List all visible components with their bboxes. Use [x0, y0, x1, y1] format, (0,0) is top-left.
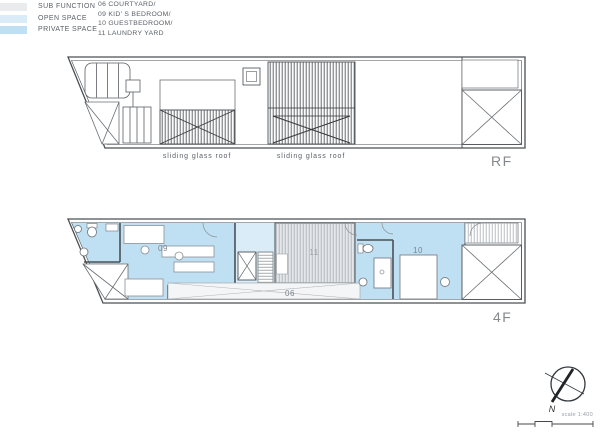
room-label-11: 11: [309, 248, 318, 257]
legend-room-11: 11 LAUNDRY YARD: [98, 30, 164, 37]
rf-sliding-roof-right: [268, 62, 355, 144]
legend-label-private-space: PRIVATE SPACE: [38, 26, 97, 33]
room-label-06: 06: [285, 289, 295, 298]
north-label: N: [549, 404, 556, 414]
rf-sliding-roof-left: [160, 80, 235, 144]
legend-swatch-sub-function: [0, 3, 27, 11]
4f-floor-plan: 09 11 10 06: [62, 212, 532, 322]
north-arrow-icon: [545, 367, 585, 402]
rf-plan-title: RF: [491, 153, 513, 169]
scale-label: scale 1:400: [562, 412, 593, 418]
legend-room-06: 06 COURTYARD/: [98, 1, 156, 8]
sliding-glass-roof-label-right: sliding glass roof: [277, 153, 345, 160]
4f-void-x-right: [462, 245, 522, 300]
room-label-09: 09: [158, 244, 168, 253]
legend-label-sub-function: SUB FUNCTION: [38, 3, 95, 10]
4f-elevator-shaft: [238, 252, 256, 280]
rf-void-x-left: [85, 102, 119, 144]
legend-room-10: 10 GUESTBEDROOM/: [98, 20, 173, 27]
architectural-drawing-sheet: sliding glass roof sliding glass roof RF: [0, 0, 600, 438]
scale-bar: [518, 421, 593, 427]
4f-void-x-left: [83, 264, 128, 299]
legend-label-open-space: OPEN SPACE: [38, 15, 87, 22]
rf-floor-plan: sliding glass roof sliding glass roof: [62, 50, 532, 168]
rf-roof-terrace-right: [462, 57, 522, 148]
4f-courtyard-06: [168, 283, 360, 299]
compass-and-scale: N scale 1:400: [512, 360, 600, 436]
legend-room-09: 09 KID' S BEDROOM/: [98, 11, 171, 18]
sliding-glass-roof-label-left: sliding glass roof: [163, 153, 231, 160]
rf-skylight: [243, 68, 260, 85]
legend-swatch-private-space: [0, 26, 27, 34]
legend-swatch-open-space: [0, 15, 27, 23]
room-label-10: 10: [413, 246, 423, 255]
4f-plan-title: 4F: [493, 309, 512, 325]
